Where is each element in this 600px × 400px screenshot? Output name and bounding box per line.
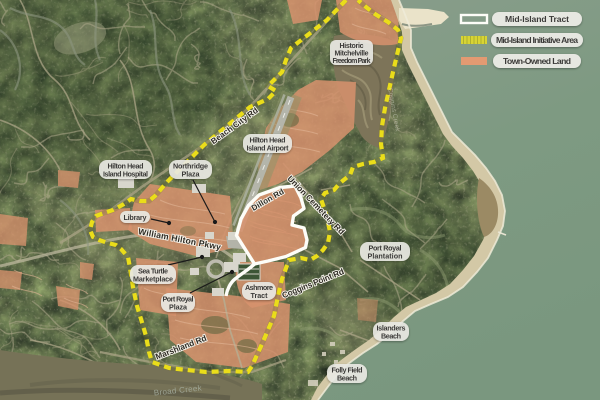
svg-text:Island Hospital: Island Hospital — [103, 170, 148, 179]
svg-text:Historic: Historic — [340, 43, 364, 50]
svg-text:Plaza: Plaza — [182, 170, 201, 179]
svg-text:Freedom Park: Freedom Park — [333, 58, 371, 65]
svg-text:Library: Library — [124, 213, 147, 222]
svg-text:Town-Owned Land: Town-Owned Land — [503, 56, 571, 66]
svg-text:Beach: Beach — [381, 332, 401, 341]
svg-text:Marketplace: Marketplace — [133, 275, 173, 284]
svg-text:Tract: Tract — [251, 291, 269, 300]
svg-text:Plantation: Plantation — [368, 252, 403, 261]
svg-text:Mitchelville: Mitchelville — [335, 51, 369, 58]
svg-text:Island Airport: Island Airport — [247, 144, 290, 153]
svg-text:Mid-Island Initiative Area: Mid-Island Initiative Area — [496, 35, 578, 45]
svg-text:Mid-Island Tract: Mid-Island Tract — [505, 14, 569, 24]
svg-text:Beach: Beach — [337, 374, 357, 383]
svg-text:Plaza: Plaza — [169, 303, 188, 312]
